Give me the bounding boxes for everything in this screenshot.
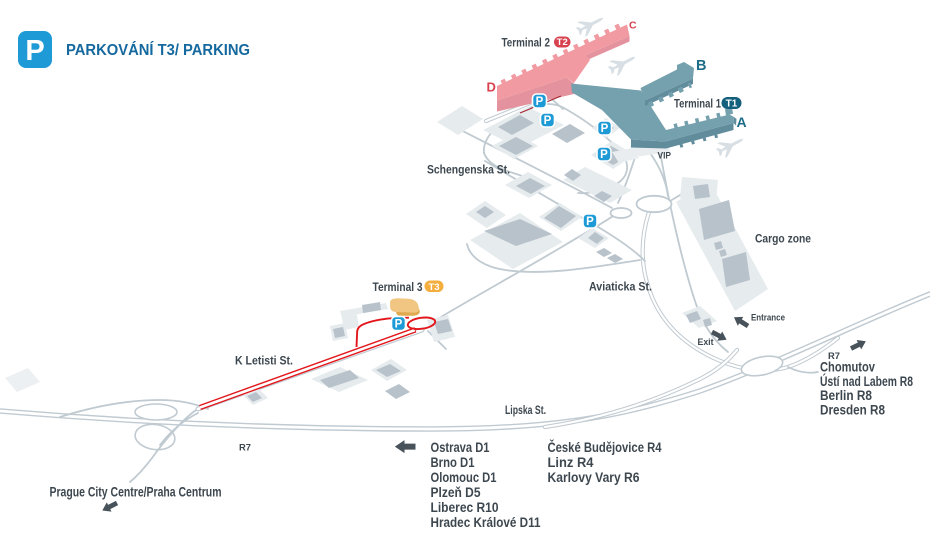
- svg-text:K Letisti St.: K Letisti St.: [235, 354, 293, 368]
- svg-text:Cargo zone: Cargo zone: [755, 232, 811, 246]
- svg-text:Linz R4: Linz R4: [548, 455, 594, 470]
- svg-text:Karlovy Vary R6: Karlovy Vary R6: [548, 470, 640, 485]
- svg-text:Entrance: Entrance: [751, 313, 785, 324]
- svg-text:Chomutov: Chomutov: [820, 360, 875, 375]
- svg-text:A: A: [737, 114, 747, 130]
- svg-text:Lipska St.: Lipska St.: [505, 403, 546, 417]
- svg-text:Aviaticka St.: Aviaticka St.: [589, 280, 652, 294]
- svg-text:Prague City Centre/Praha Centr: Prague City Centre/Praha Centrum: [50, 485, 222, 500]
- svg-text:T1: T1: [726, 99, 738, 110]
- svg-text:VIP: VIP: [658, 151, 672, 162]
- svg-text:Liberec R10: Liberec R10: [431, 500, 499, 515]
- svg-text:D: D: [487, 80, 496, 95]
- svg-text:C: C: [629, 20, 637, 32]
- svg-text:T3: T3: [428, 282, 439, 293]
- svg-text:B: B: [696, 58, 706, 74]
- svg-text:Hradec Králové D11: Hradec Králové D11: [431, 515, 541, 530]
- svg-text:Terminal 2: Terminal 2: [502, 38, 551, 50]
- svg-text:Ostrava D1: Ostrava D1: [431, 440, 490, 455]
- svg-text:České Budějovice R4: České Budějovice R4: [548, 440, 662, 455]
- svg-text:Terminal 1: Terminal 1: [674, 99, 721, 111]
- svg-text:Exit: Exit: [698, 337, 715, 348]
- svg-text:Brno D1: Brno D1: [431, 455, 475, 470]
- svg-text:Ústí nad Labem R8: Ústí nad Labem R8: [820, 374, 913, 389]
- svg-text:Dresden R8: Dresden R8: [820, 402, 885, 417]
- svg-text:Terminal 3: Terminal 3: [373, 282, 423, 294]
- svg-text:Plzeň D5: Plzeň D5: [431, 485, 481, 500]
- svg-text:P: P: [25, 35, 44, 67]
- svg-text:Olomouc D1: Olomouc D1: [431, 470, 497, 485]
- svg-text:T2: T2: [557, 37, 568, 48]
- svg-text:R7: R7: [239, 443, 251, 454]
- svg-text:Schengenska St.: Schengenska St.: [427, 163, 510, 177]
- svg-text:PARKOVÁNÍ T3/ PARKING: PARKOVÁNÍ T3/ PARKING: [66, 40, 250, 59]
- svg-text:Berlin R8: Berlin R8: [820, 388, 872, 403]
